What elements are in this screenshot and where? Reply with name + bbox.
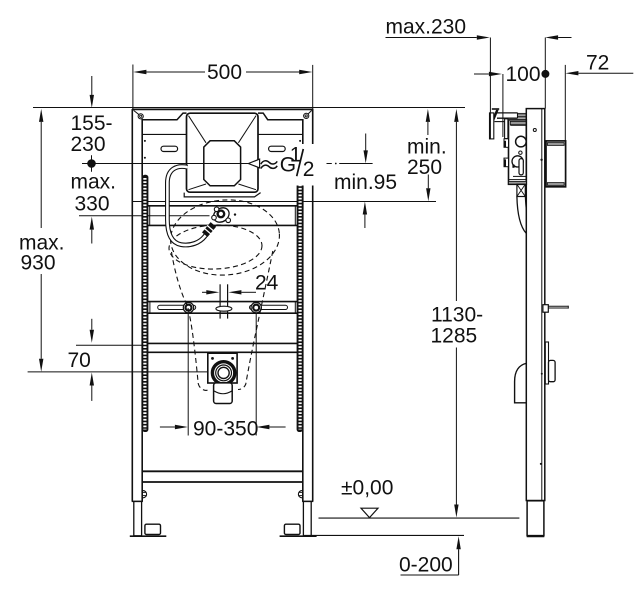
svg-text:90-350: 90-350 bbox=[193, 418, 258, 441]
svg-text:330: 330 bbox=[75, 193, 110, 216]
svg-text:100: 100 bbox=[506, 63, 541, 86]
svg-text:70: 70 bbox=[68, 349, 91, 372]
svg-text:0-200: 0-200 bbox=[399, 554, 453, 577]
svg-text:max.230: max.230 bbox=[386, 16, 467, 39]
svg-text:500: 500 bbox=[207, 61, 242, 84]
svg-text:24: 24 bbox=[255, 272, 279, 295]
svg-text:max.: max. bbox=[71, 171, 117, 194]
svg-text:2: 2 bbox=[303, 158, 315, 181]
svg-text:155-: 155- bbox=[71, 112, 113, 135]
svg-text:1130-: 1130- bbox=[431, 304, 483, 327]
svg-text:230: 230 bbox=[71, 133, 106, 156]
svg-text:±0,00: ±0,00 bbox=[341, 477, 393, 500]
svg-text:930: 930 bbox=[21, 252, 56, 275]
svg-text:1285: 1285 bbox=[431, 325, 478, 348]
svg-text:min.95: min.95 bbox=[334, 171, 397, 194]
svg-text:72: 72 bbox=[586, 52, 609, 75]
svg-text:250: 250 bbox=[407, 156, 442, 179]
